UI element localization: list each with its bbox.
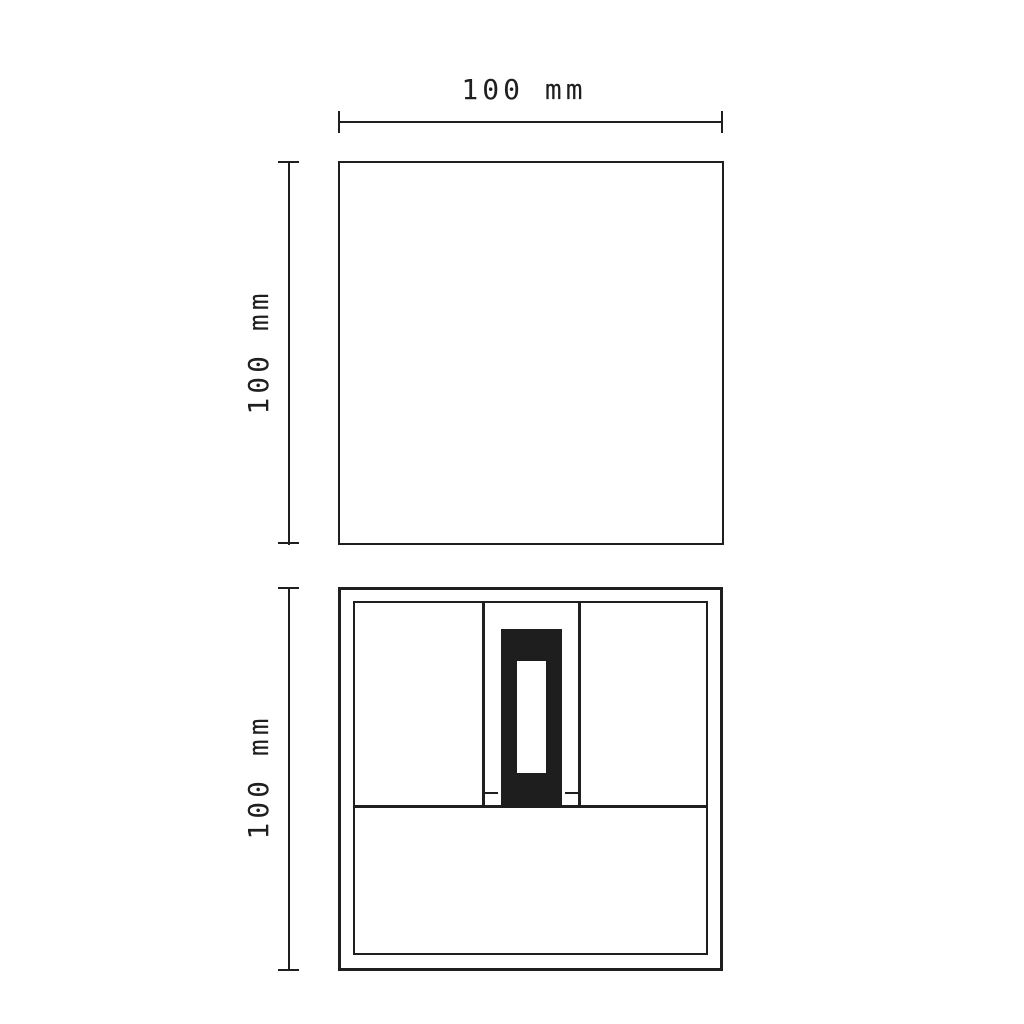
dimension-label: 100 mm: [461, 76, 586, 104]
technical-drawing-canvas: 100 mm 100 mm 100 mm: [0, 0, 1024, 1024]
dimension-tick-end: [721, 111, 723, 133]
lamp-module-slot: [517, 661, 546, 773]
right-connector-tick: [565, 792, 579, 794]
dimension-line: [288, 587, 290, 971]
dimension-tick-end: [278, 969, 299, 971]
right-panel-divider: [578, 603, 581, 807]
dimension-tick-end: [278, 542, 299, 544]
dimension-label: 100 mm: [245, 289, 273, 414]
dimension-tick-start: [278, 161, 299, 163]
dimension-tick-start: [278, 587, 299, 589]
dimension-tick-start: [338, 111, 340, 133]
left-panel-divider: [482, 603, 485, 807]
dimension-line: [338, 121, 723, 123]
dimension-line: [288, 161, 290, 545]
dimension-label: 100 mm: [245, 714, 273, 839]
left-connector-tick: [484, 792, 498, 794]
top-view-outline: [338, 161, 724, 545]
